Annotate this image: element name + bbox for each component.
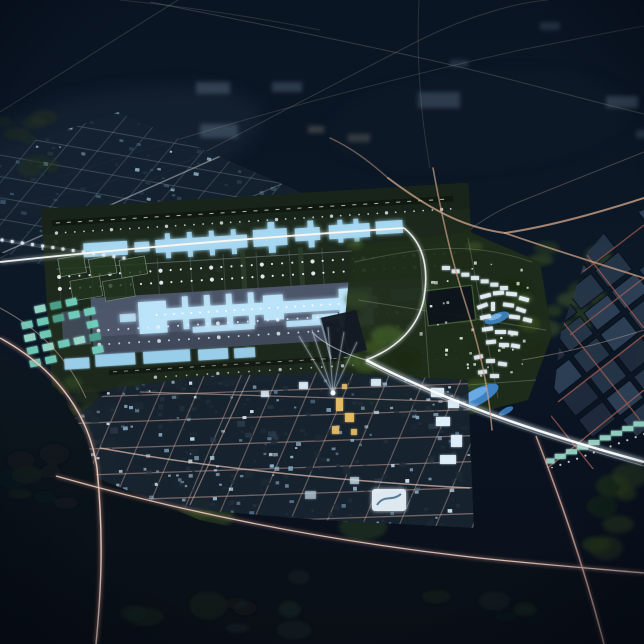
aerial-masterplan-night-render xyxy=(0,0,644,644)
vignette xyxy=(0,0,644,644)
screenshot-root xyxy=(0,0,644,644)
